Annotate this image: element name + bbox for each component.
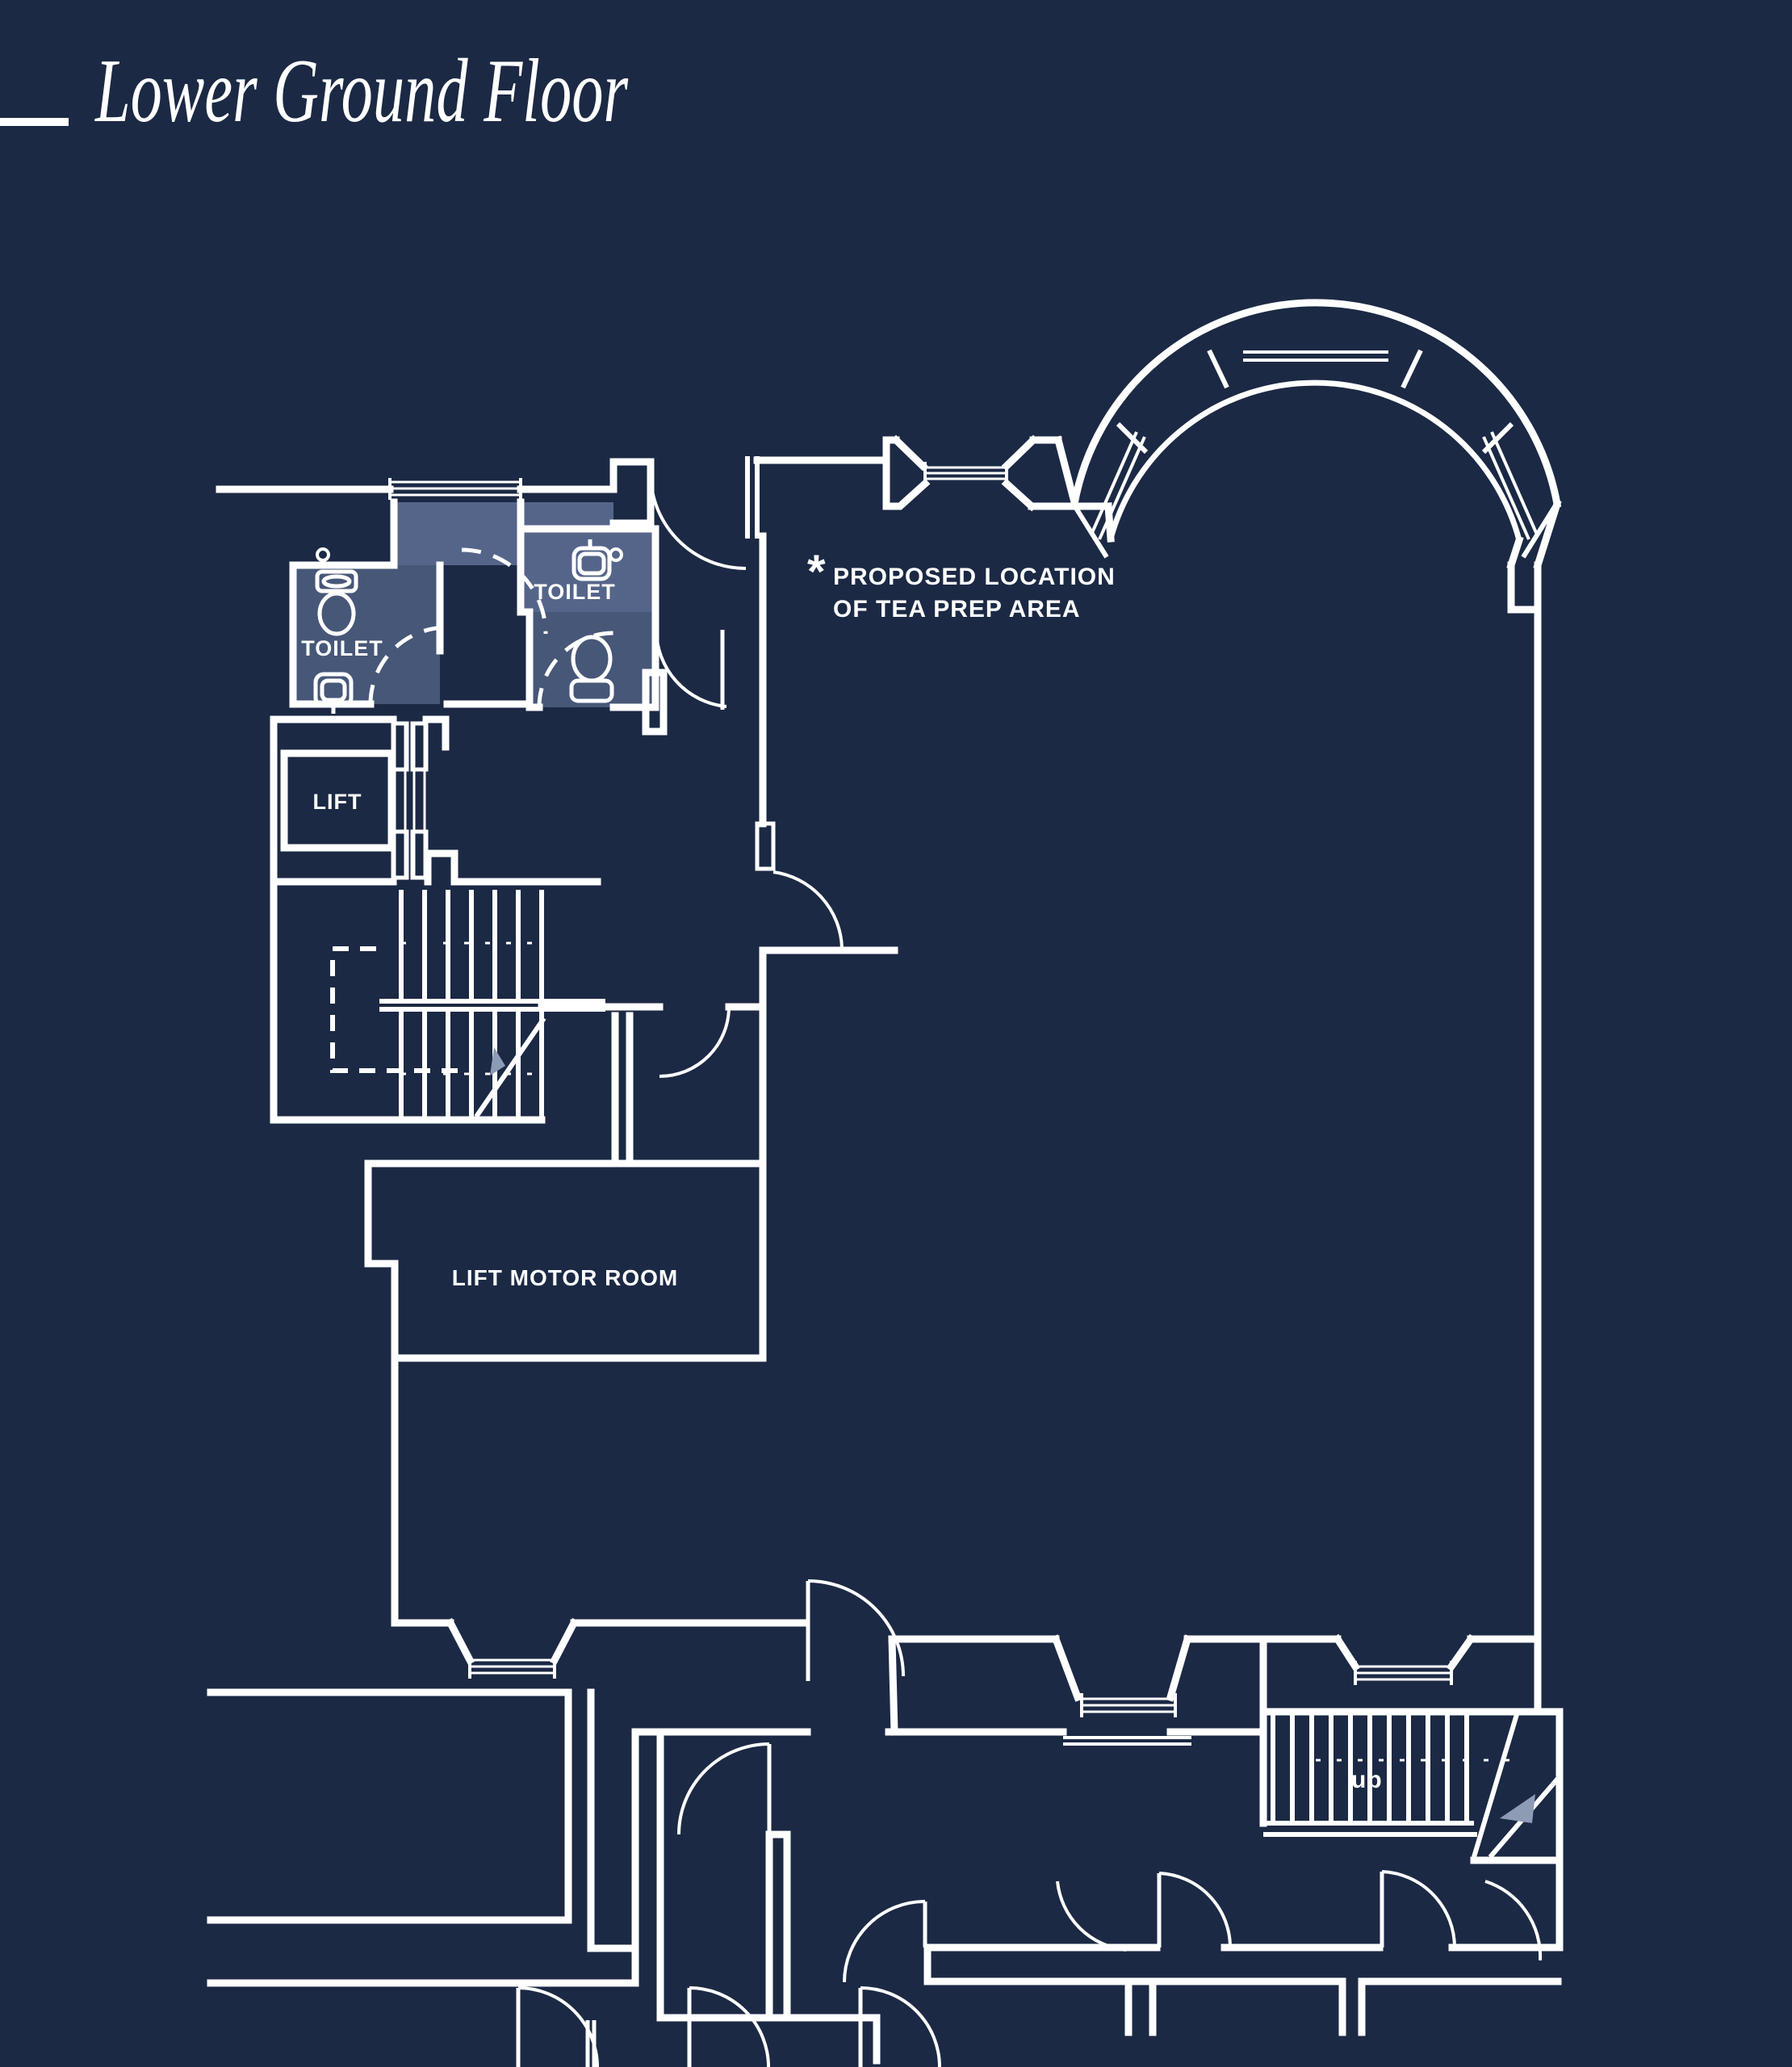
- bay-outer-arc: [1074, 303, 1557, 504]
- lift-label: LIFT: [313, 790, 362, 814]
- lift-motor-room-label: LIFT MOTOR ROOM: [452, 1265, 678, 1290]
- bottom-wall-right: [1263, 1639, 1538, 1667]
- lift-door-tracks: [395, 723, 425, 878]
- note-line-2: OF TEA PREP AREA: [833, 596, 1081, 623]
- window-bottom-right: [1355, 1667, 1451, 1679]
- stair-direction-arrow-upper: [490, 1047, 505, 1075]
- stair-edge-lower: [1263, 1823, 1477, 1834]
- lift-motor-room-walls: [368, 1163, 763, 1358]
- big-room-top-wall: [757, 440, 1111, 539]
- stairs-up-label: up: [1351, 1767, 1383, 1793]
- big-room-left-wall: [763, 536, 894, 1163]
- bottom-window-pier-1: [892, 1639, 1078, 1732]
- stair-enclosure-lower: [1263, 1712, 1560, 1860]
- window-top-recess: [925, 467, 1007, 479]
- stair-direction-arrow-lower: [1500, 1794, 1535, 1823]
- toilet-middle-label: TOILET: [534, 580, 616, 604]
- floor-plan-drawing: Lower Ground Floor: [0, 0, 1792, 2067]
- toilet-left-label: TOILET: [301, 636, 383, 660]
- staircase-lower: [1263, 1712, 1561, 1857]
- bay-inner-arc: [1111, 383, 1519, 540]
- lift-door-leaves: [393, 723, 426, 878]
- title-dash-rule: [0, 118, 69, 126]
- toilet-middle-highlight-lower: [530, 612, 655, 707]
- door-leaves: [518, 630, 1382, 2067]
- door-knob-left-icon: [317, 549, 329, 560]
- vestibule-walls: [542, 1007, 763, 1163]
- lower-left-wall: [395, 1358, 450, 1623]
- note-asterisk: *: [807, 546, 827, 598]
- bottom-left-rooms: [211, 1692, 635, 1983]
- window-top-left: [390, 482, 521, 495]
- lobby-door-jamb: [747, 459, 757, 536]
- stair-break-line: [476, 1018, 544, 1117]
- tea-prep-note: * PROPOSED LOCATION OF TEA PREP AREA: [807, 546, 1116, 623]
- lift-doors: [393, 723, 426, 878]
- right-exterior-wall: [1538, 565, 1560, 1948]
- window-bottom-central: [1082, 1699, 1175, 1712]
- window-bottom-left: [470, 1660, 555, 1673]
- bottom-corridor-walls: [635, 1732, 660, 2018]
- bay-window: [1074, 303, 1557, 610]
- stair-stringers: [1474, 1712, 1561, 1857]
- bottom-pillar: [769, 1834, 787, 2018]
- note-line-1: PROPOSED LOCATION: [833, 564, 1116, 590]
- page-title: Lower Ground Floor: [94, 41, 629, 141]
- central-window-sill: [1063, 1738, 1191, 1744]
- stair-treads-upper: [401, 890, 542, 1120]
- bottom-window-pier-2: [1170, 1639, 1263, 1732]
- floor-plan-page: Lower Ground Floor: [0, 0, 1792, 2067]
- bottom-band-wall: [927, 1948, 1558, 2032]
